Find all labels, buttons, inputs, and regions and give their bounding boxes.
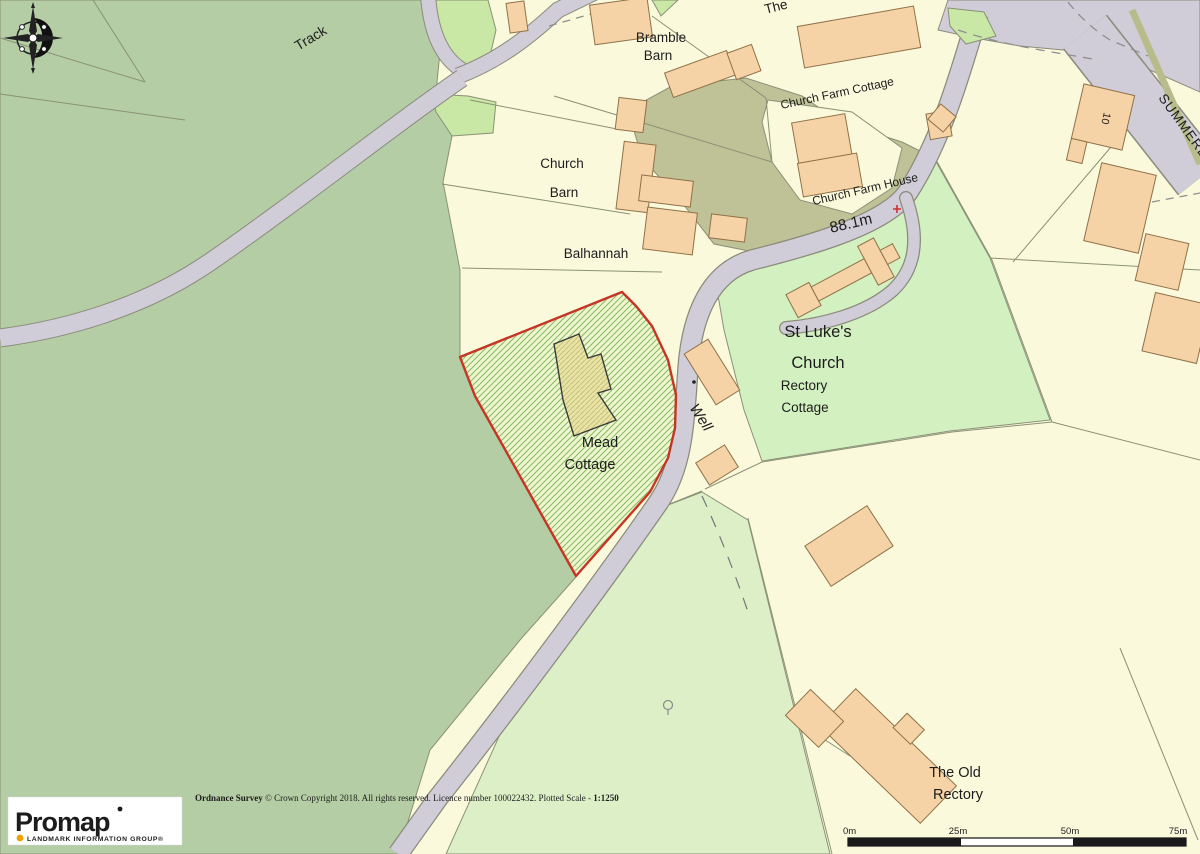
- label-st-lukes-1: St Luke's: [784, 323, 851, 341]
- label-church-barn-1: Church: [540, 156, 584, 171]
- scale-tick-75: 75m: [1169, 826, 1188, 837]
- copyright-prefix: Ordnance Survey: [195, 793, 263, 803]
- map-canvas[interactable]: Track Bramble Barn The Church Farm Cotta…: [0, 0, 1200, 854]
- promap-logo-text: Promap: [15, 807, 110, 837]
- label-st-lukes-2: Church: [791, 354, 844, 372]
- building-church-barn-5: [709, 214, 748, 242]
- scale-tick-25: 25m: [949, 826, 968, 837]
- label-balhannah: Balhannah: [564, 246, 629, 261]
- copyright-scale-value: 1:1250: [593, 793, 619, 803]
- landmark-tagline: LANDMARK INFORMATION GROUP®: [27, 835, 164, 843]
- label-rectory-cottage-1: Rectory: [781, 378, 828, 393]
- promap-logo: Promap LANDMARK INFORMATION GROUP®: [8, 797, 182, 845]
- promap-logo-dot-icon: [118, 807, 123, 812]
- label-bramble-barn-2: Barn: [644, 48, 673, 63]
- label-old-rectory-2: Rectory: [933, 787, 984, 803]
- label-mead-cottage-2: Cottage: [565, 457, 616, 473]
- label-mead-cottage-1: Mead: [582, 435, 618, 451]
- label-old-rectory-1: The Old: [929, 765, 981, 781]
- scale-tick-0: 0m: [843, 826, 856, 837]
- label-bramble-barn-1: Bramble: [636, 30, 686, 45]
- building-church-barn-1: [615, 97, 647, 132]
- scale-tick-50: 50m: [1061, 826, 1080, 837]
- building-small-top: [506, 1, 528, 33]
- logo-bullet-icon: [17, 835, 24, 842]
- copyright-body: © Crown Copyright 2018. All rights reser…: [263, 793, 594, 803]
- copyright-attribution: Ordnance Survey © Crown Copyright 2018. …: [195, 793, 619, 803]
- building-church-barn-4: [643, 207, 698, 255]
- label-rectory-cottage-2: Cottage: [781, 400, 828, 415]
- well-dot-icon: [692, 380, 696, 384]
- label-church-barn-2: Barn: [550, 185, 579, 200]
- promap-plan-viewport: Track Bramble Barn The Church Farm Cotta…: [0, 0, 1200, 854]
